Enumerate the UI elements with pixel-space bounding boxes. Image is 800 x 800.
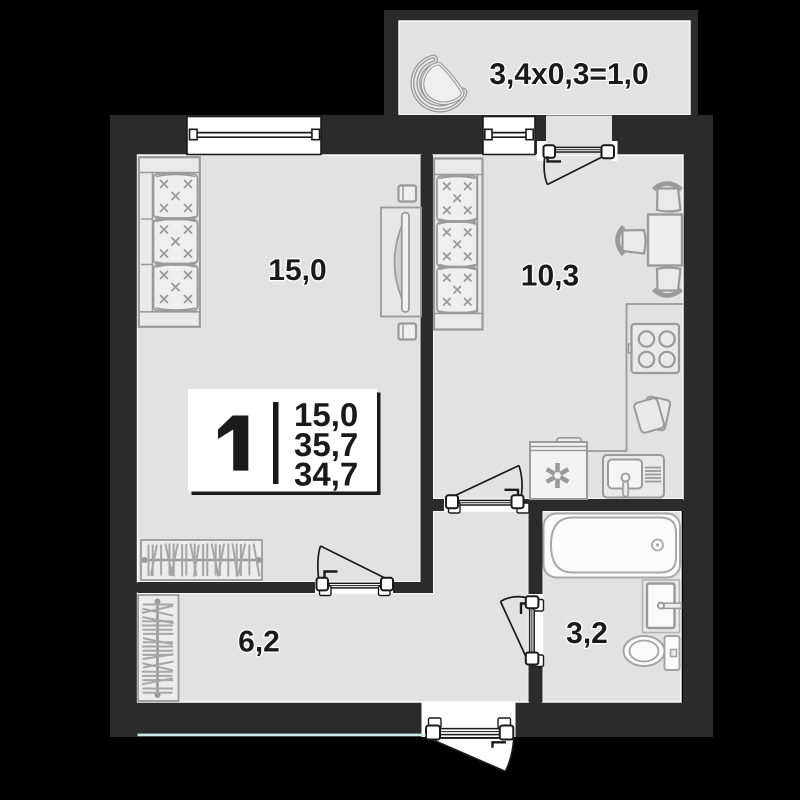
svg-text:10,3: 10,3 [521, 260, 579, 293]
svg-text:3,4x0,3=1,0: 3,4x0,3=1,0 [489, 58, 648, 91]
svg-text:34,7: 34,7 [294, 456, 358, 493]
svg-text:3,2: 3,2 [566, 617, 608, 650]
svg-text:6,2: 6,2 [238, 626, 280, 659]
svg-text:15,0: 15,0 [268, 254, 326, 287]
